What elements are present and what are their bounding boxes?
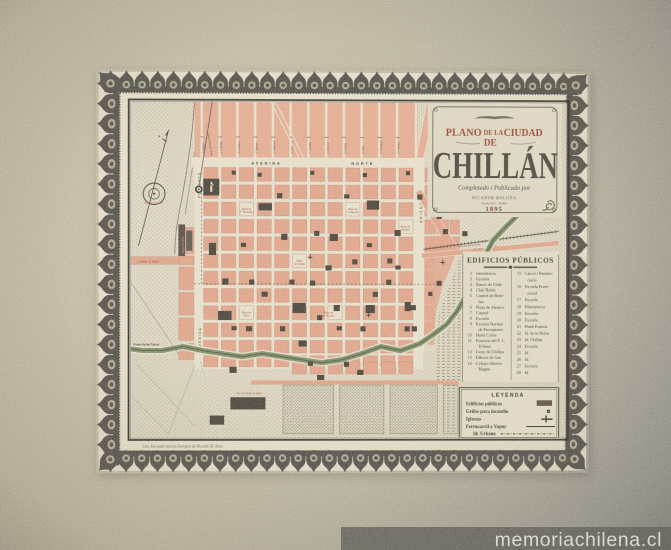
svg-text:Lito. Encuadernacion Europea d: Lito. Encuadernacion Europea de Ricardo …: [142, 445, 224, 449]
